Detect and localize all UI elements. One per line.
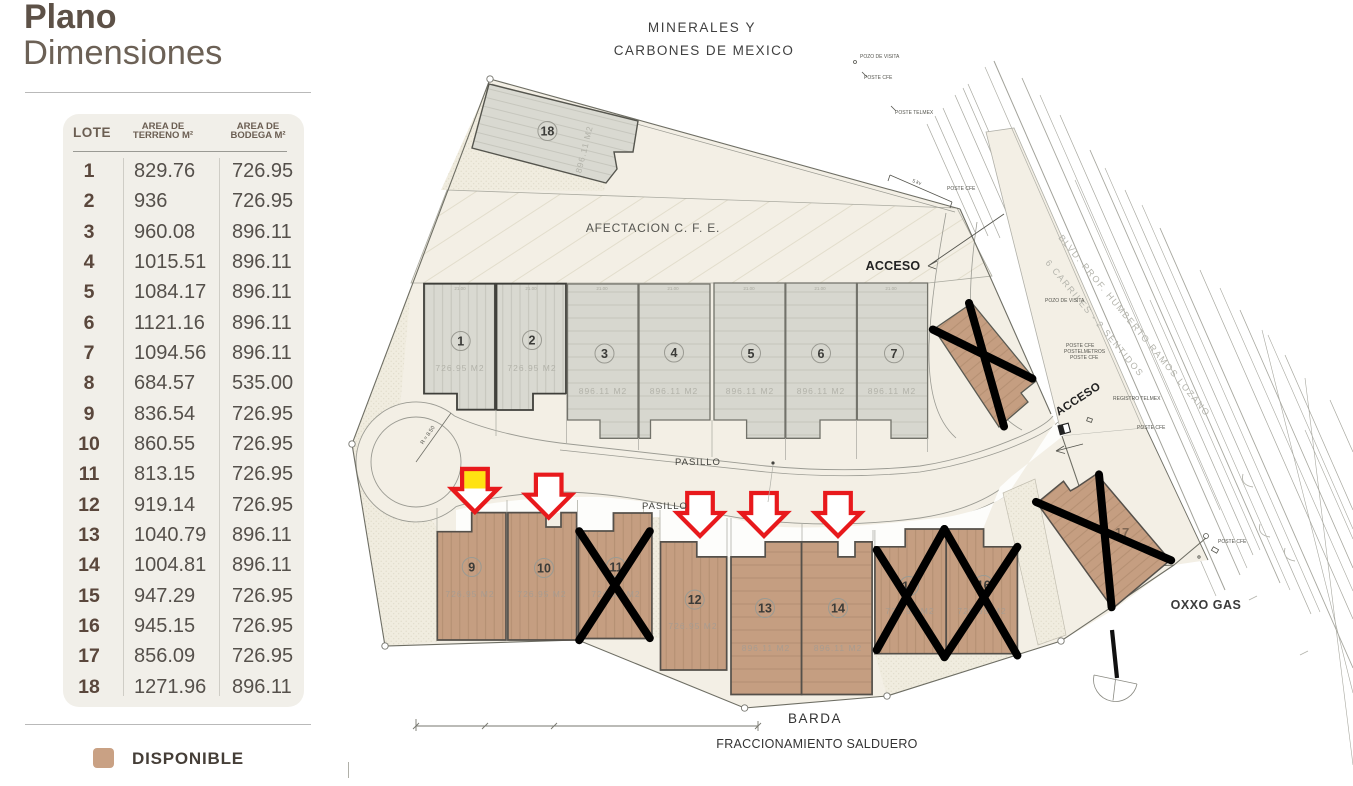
svg-text:CARBONES DE MEXICO: CARBONES DE MEXICO — [614, 43, 794, 58]
svg-text:PASILLO: PASILLO — [642, 501, 688, 512]
svg-text:OXXO GAS: OXXO GAS — [1171, 598, 1242, 612]
svg-text:5: 5 — [748, 347, 755, 361]
svg-text:REGISTRO TELMEX: REGISTRO TELMEX — [1113, 396, 1161, 402]
svg-text:21.00: 21.00 — [885, 286, 897, 291]
svg-text:21.00: 21.00 — [525, 286, 537, 291]
svg-text:9: 9 — [468, 561, 475, 575]
svg-text:FRACCIONAMIENTO SALDUERO: FRACCIONAMIENTO SALDUERO — [716, 737, 917, 751]
svg-text:POSTE CFE: POSTE CFE — [1137, 425, 1166, 431]
svg-text:5 kv: 5 kv — [911, 178, 922, 187]
svg-text:896.11 M2: 896.11 M2 — [814, 643, 863, 653]
svg-text:896.11 M2: 896.11 M2 — [797, 386, 846, 396]
svg-text:21.00: 21.00 — [814, 286, 826, 291]
svg-text:POSTE CFE: POSTE CFE — [1218, 539, 1247, 545]
svg-text:MINERALES Y: MINERALES Y — [648, 20, 756, 35]
svg-text:13: 13 — [758, 602, 772, 616]
svg-text:21.00: 21.00 — [743, 286, 755, 291]
svg-text:1: 1 — [457, 335, 464, 349]
svg-text:POZO DE VISITA: POZO DE VISITA — [1045, 298, 1085, 304]
svg-text:12: 12 — [688, 593, 702, 607]
svg-text:896.11 M2: 896.11 M2 — [579, 386, 628, 396]
svg-text:POZO DE VISITA: POZO DE VISITA — [860, 54, 900, 60]
svg-text:21.00: 21.00 — [667, 286, 679, 291]
svg-text:ACCESO: ACCESO — [866, 259, 921, 273]
svg-text:18: 18 — [540, 125, 554, 139]
svg-text:726.95 M2: 726.95 M2 — [507, 363, 556, 373]
svg-text:AFECTACION C. F. E.: AFECTACION C. F. E. — [586, 221, 720, 235]
svg-text:POSTE CFE: POSTE CFE — [947, 186, 976, 192]
svg-text:726.95 M2: 726.95 M2 — [435, 363, 484, 373]
svg-text:3: 3 — [601, 347, 608, 361]
svg-text:896.11 M2: 896.11 M2 — [650, 386, 699, 396]
svg-text:4: 4 — [671, 346, 678, 360]
svg-text:896.11 M2: 896.11 M2 — [726, 386, 775, 396]
svg-text:21.00: 21.00 — [596, 286, 608, 291]
svg-text:21.00: 21.00 — [454, 286, 466, 291]
svg-text:896.11 M2: 896.11 M2 — [868, 386, 917, 396]
svg-text:10: 10 — [537, 562, 551, 576]
svg-text:BARDA: BARDA — [788, 711, 842, 726]
svg-text:896.11 M2: 896.11 M2 — [742, 643, 791, 653]
svg-text:6: 6 — [818, 347, 825, 361]
svg-text:POSTE TELMEX: POSTE TELMEX — [895, 110, 934, 116]
svg-text:POSTE CFE: POSTE CFE — [864, 75, 893, 81]
svg-text:726.95 M2: 726.95 M2 — [668, 621, 717, 631]
svg-text:7: 7 — [891, 347, 898, 361]
svg-text:14: 14 — [831, 602, 845, 616]
svg-text:POSTE CFE: POSTE CFE — [1070, 355, 1099, 361]
svg-text:726.95 M2: 726.95 M2 — [445, 589, 494, 599]
svg-text:PASILLO: PASILLO — [675, 457, 721, 468]
svg-text:726.95 M2: 726.95 M2 — [517, 589, 566, 599]
svg-text:2: 2 — [529, 334, 536, 348]
